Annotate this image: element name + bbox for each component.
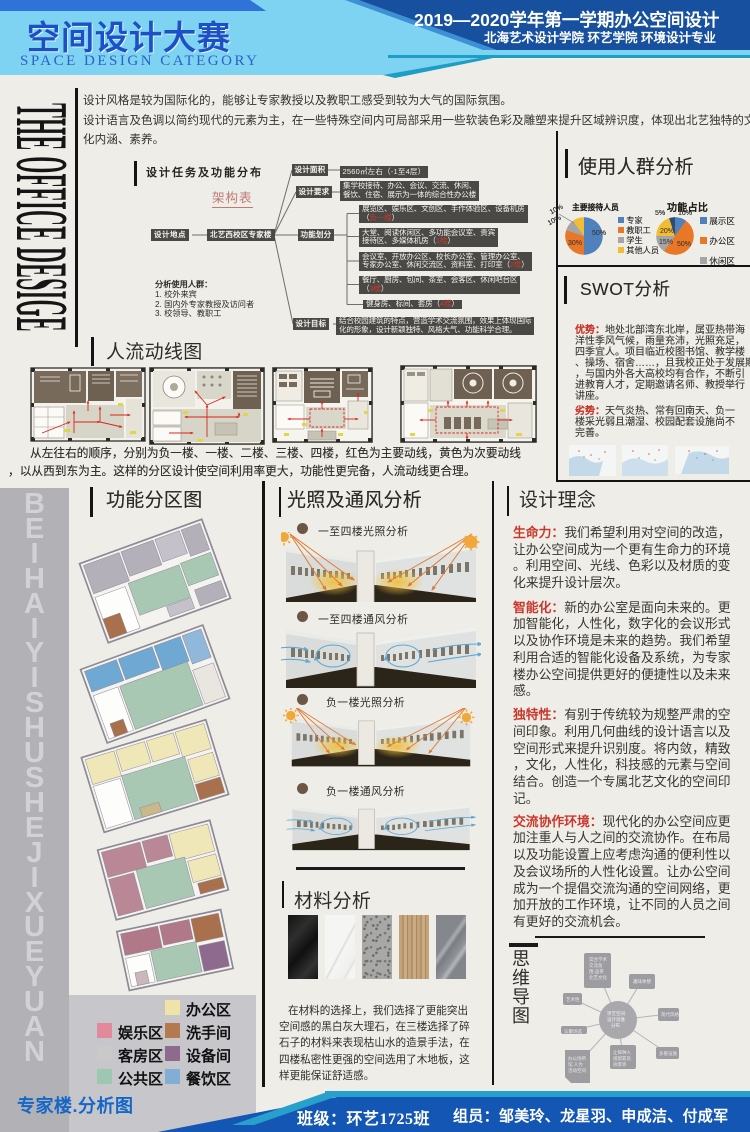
svg-text:50%: 50% [592,230,606,237]
svg-text:10%: 10% [547,214,563,227]
svg-text:5%: 5% [655,210,665,217]
svg-text:30%: 30% [568,240,582,247]
svg-text:设计思维: 设计思维 [607,1016,625,1023]
svg-text:10%: 10% [678,210,692,217]
svg-text:趣味休憩: 趣味休憩 [633,978,651,985]
svg-text:分布: 分布 [611,1022,620,1029]
svg-text:常合学术: 常合学术 [589,956,607,963]
svg-text:认聚场选: 认聚场选 [564,1028,582,1035]
svg-text:20%: 20% [660,228,674,235]
svg-text:项艺空间: 项艺空间 [607,1010,625,1017]
svg-text:馆 人为: 馆 人为 [568,1061,583,1068]
svg-text:效景等: 效景等 [613,1061,627,1068]
svg-text:50%: 50% [677,241,691,248]
svg-text:10%: 10% [549,203,565,216]
svg-text:15%: 15% [659,239,673,246]
svg-text:现代风格: 现代风格 [661,1011,679,1018]
svg-text:活动空间: 活动空间 [568,1067,586,1074]
svg-text:多重设施: 多重设施 [659,1050,677,1057]
svg-text:办公场所: 办公场所 [568,1055,586,1062]
svg-text:北艺文化: 北艺文化 [589,974,607,981]
svg-text:交流氛: 交流氛 [589,962,603,969]
svg-text:围 品茶: 围 品茶 [589,968,604,975]
svg-text:艺术性: 艺术性 [566,996,580,1003]
svg-text:让每种人: 让每种人 [613,1049,631,1056]
svg-text:搭配靠及: 搭配靠及 [613,1055,631,1062]
